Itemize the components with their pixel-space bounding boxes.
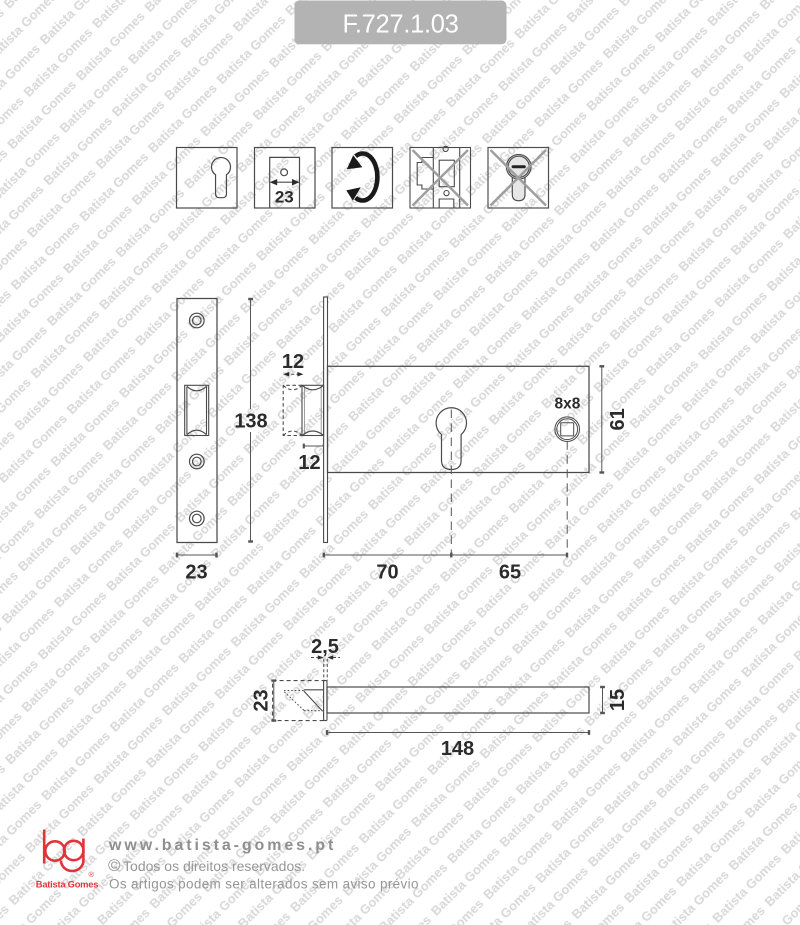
svg-text:Batista Gomes: Batista Gomes	[36, 879, 98, 890]
svg-text:2,5: 2,5	[311, 636, 339, 658]
svg-text:23: 23	[185, 562, 207, 584]
svg-text:61: 61	[607, 408, 629, 430]
svg-text:15: 15	[607, 689, 629, 711]
svg-text:F.727.1.03: F.727.1.03	[342, 11, 458, 39]
svg-text:138: 138	[234, 411, 267, 433]
svg-text:23: 23	[251, 689, 273, 711]
svg-text:8x8: 8x8	[554, 395, 580, 412]
svg-text:Os artigos podem ser alterados: Os artigos podem ser alterados sem aviso…	[109, 877, 419, 892]
svg-text:12: 12	[298, 452, 320, 474]
svg-text:www.batista-gomes.pt: www.batista-gomes.pt	[108, 837, 336, 854]
svg-text:65: 65	[499, 562, 521, 584]
svg-text:12: 12	[282, 351, 304, 373]
svg-text:70: 70	[376, 562, 398, 584]
svg-text:©Todos os direitos reservados.: ©Todos os direitos reservados.	[108, 856, 305, 875]
svg-text:148: 148	[441, 738, 474, 760]
svg-text:23: 23	[275, 188, 294, 207]
